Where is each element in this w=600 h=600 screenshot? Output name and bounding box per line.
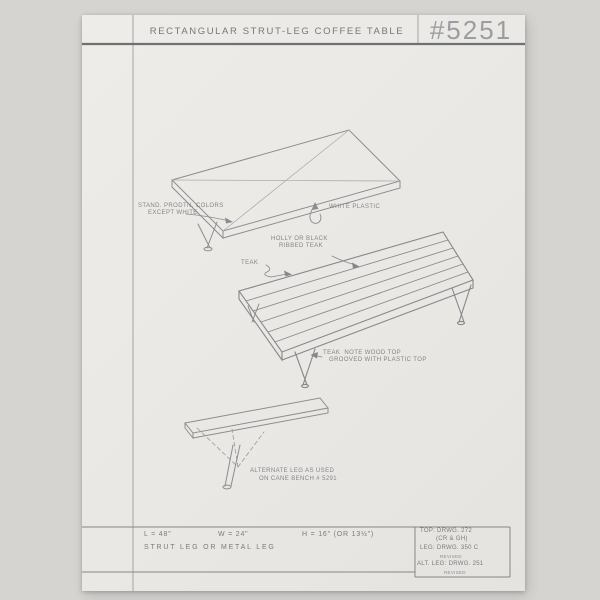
drawing-number: #5251 xyxy=(420,15,522,46)
ref-top-drawing-sub: (CR & GH) xyxy=(436,536,468,542)
dimension-length: L = 48" xyxy=(144,531,171,538)
ref-leg-drawing: LEG: DRWG. 350 C xyxy=(420,545,478,551)
dimension-width: W = 24" xyxy=(218,531,248,538)
dimension-height: H = 16" (OR 13½") xyxy=(302,531,374,538)
bottom-slab-face xyxy=(185,398,328,433)
ribbed-note-line2: RIBBED TEAK xyxy=(279,243,323,249)
top-slab-diagonals xyxy=(172,130,400,231)
wood-top-note-line2: GROOVED WITH PLASTIC TOP xyxy=(329,357,427,363)
alt-leg-note-line2: ON CANE BENCH # 5291 xyxy=(259,476,337,482)
drawing-sheet: RECTANGULAR STRUT-LEG COFFEE TABLE #5251… xyxy=(82,15,525,591)
ref-top-drawing: TOP: DRWG. 272 xyxy=(420,528,472,534)
margin-rules xyxy=(133,15,418,591)
finish-note-arrowhead xyxy=(225,218,233,224)
alternate-leg-foot xyxy=(223,485,231,489)
middle-right-leg xyxy=(452,285,471,322)
alt-leg-note-line1: ALTERNATE LEG AS USED xyxy=(250,468,334,474)
bottom-dashed-construction xyxy=(197,428,264,467)
ribbed-note-line1: HOLLY OR BLACK xyxy=(271,236,328,242)
top-view-leg xyxy=(198,222,217,248)
drawing-title: RECTANGULAR STRUT-LEG COFFEE TABLE xyxy=(138,26,416,37)
bottom-slab-thickness xyxy=(185,408,328,438)
finish-note-line1: STAND. PRODTN. COLORS xyxy=(138,203,224,209)
leg-options-label: STRUT LEG OR METAL LEG xyxy=(144,544,276,551)
middle-right-leg-foot xyxy=(458,321,465,324)
ref-leg-drawing-sub: REVISED xyxy=(440,554,462,559)
ribbed-note-arrowhead xyxy=(352,263,360,269)
middle-slab-thickness xyxy=(239,280,473,360)
finish-note-line2: EXCEPT WHITE xyxy=(148,210,198,216)
middle-slab-face xyxy=(239,232,473,352)
ref-alt-leg-drawing-sub: REVISED xyxy=(444,570,466,575)
middle-front-leg-foot xyxy=(302,384,309,387)
teak-squiggle-arrow xyxy=(265,265,287,277)
ref-alt-leg-drawing: ALT. LEG: DRWG. 251 xyxy=(417,561,484,567)
scanned-drawing-page: { "document": { "title": "RECTANGULAR ST… xyxy=(0,0,600,600)
middle-view-drawing xyxy=(239,232,473,388)
white-plastic-label: WHITE PLASTIC xyxy=(329,204,380,210)
top-view-leg-foot xyxy=(204,247,212,251)
wood-top-note-line1: TEAK NOTE WOOD TOP xyxy=(323,350,401,356)
teak-label: TEAK xyxy=(241,260,258,266)
middle-slats xyxy=(246,240,468,342)
top-view-drawing xyxy=(172,130,400,251)
pencil-linework xyxy=(82,15,525,591)
